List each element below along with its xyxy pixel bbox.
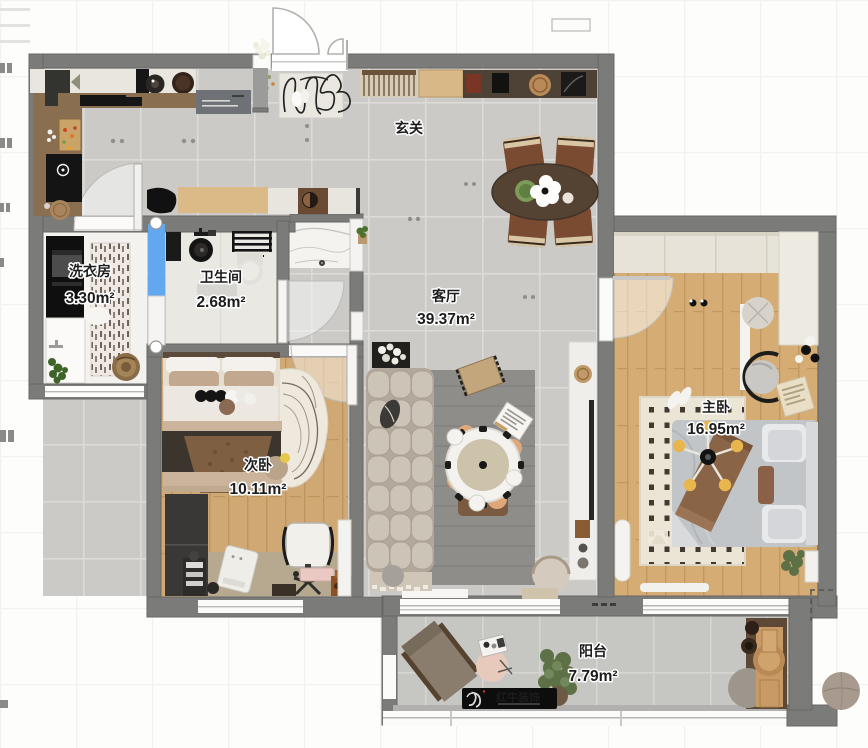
svg-text:2.68m²: 2.68m²	[196, 294, 245, 311]
svg-text:10.11m²: 10.11m²	[230, 481, 287, 498]
svg-text:洗衣房: 洗衣房	[69, 263, 111, 279]
svg-text:主卧: 主卧	[702, 399, 730, 415]
svg-text:阳台: 阳台	[579, 643, 607, 659]
svg-text:3.30m²: 3.30m²	[65, 290, 114, 307]
svg-text:玄关: 玄关	[395, 120, 423, 136]
svg-text:次卧: 次卧	[244, 457, 272, 473]
svg-text:7.79m²: 7.79m²	[568, 668, 617, 685]
svg-text:16.95m²: 16.95m²	[687, 421, 745, 438]
svg-text:红牛装饰: 红牛装饰	[496, 690, 540, 704]
svg-text:客厅: 客厅	[431, 288, 460, 304]
svg-text:卫生间: 卫生间	[200, 269, 242, 285]
svg-text:39.37m²: 39.37m²	[417, 311, 475, 328]
